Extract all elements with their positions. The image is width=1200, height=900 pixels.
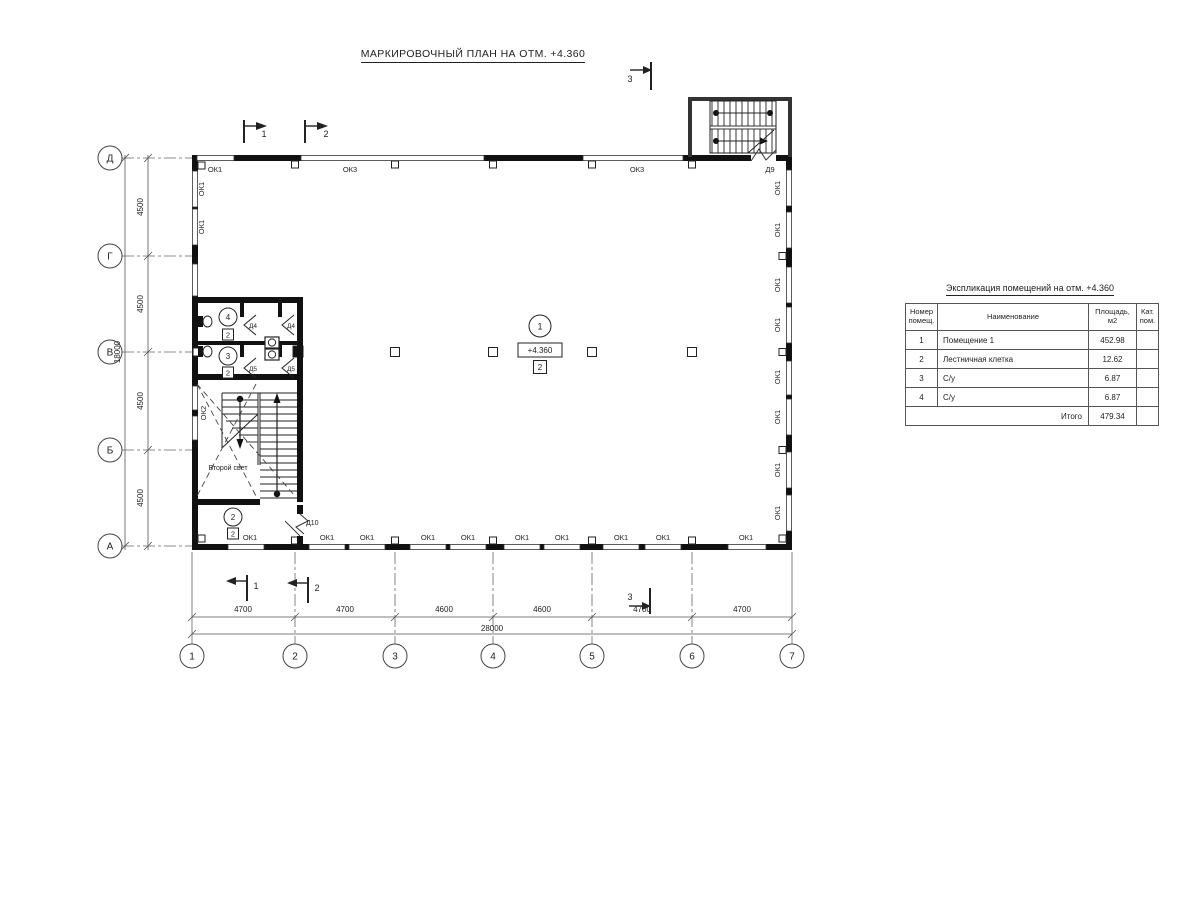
schedule-title-text: Экспликация помещений на отм. +4.360	[946, 283, 1114, 296]
tag-ok1: ОК1	[421, 533, 435, 542]
room-marker-wc-lower: 3 2	[219, 347, 237, 378]
room-marker-wc-upper: 4 2	[219, 308, 237, 340]
cell-area: 452.98	[1089, 331, 1137, 350]
axis-row-4: А	[107, 542, 114, 553]
floor-plan-canvas: 4500 4500 4500 4500 18000 4700 4700 4600…	[0, 0, 1200, 900]
dim-row-2: 4500	[136, 392, 145, 410]
tag-d10: Д10	[306, 520, 319, 527]
section-1-label: 1	[261, 129, 266, 139]
dim-col-total: 28000	[481, 624, 504, 633]
dim-row-1: 4500	[136, 295, 145, 313]
window-segment	[786, 212, 791, 248]
tag-ok1: ОК1	[197, 182, 206, 196]
section-mark-2-top: 2	[305, 120, 329, 143]
axis-col-0: 1	[189, 652, 195, 663]
schedule-total-row: Итого 479.34	[906, 407, 1159, 426]
cell-area: 6.87	[1089, 369, 1137, 388]
tag-ok1: ОК1	[773, 370, 782, 384]
tag-d5: Д5	[287, 366, 295, 373]
window-segment	[786, 495, 791, 531]
tag-ok1: ОК1	[773, 223, 782, 237]
total-value: 479.34	[1089, 407, 1137, 426]
plumbing-fixtures	[198, 316, 279, 360]
category-mark: 2	[538, 363, 543, 372]
room-number: 4	[226, 313, 231, 322]
cell-num: 4	[906, 388, 938, 407]
column	[588, 348, 597, 357]
table-row: 3 С/у 6.87	[906, 369, 1159, 388]
schedule-table: Номер помещ. Наименование Площадь, м2 Ка…	[905, 303, 1159, 426]
schedule-header-row: Номер помещ. Наименование Площадь, м2 Ка…	[906, 304, 1159, 331]
toilet-icon	[198, 346, 203, 357]
section-mark-1-bottom: 1	[226, 575, 259, 601]
cell-area: 6.87	[1089, 388, 1137, 407]
drawing-sheet: МАРКИРОВОЧНЫЙ ПЛАН НА ОТМ. +4.360	[0, 0, 1200, 900]
axis-bubble-labels: Д Г В Б А 1 2 3 4 5 6 7	[107, 154, 796, 663]
cell-name: С/у	[938, 388, 1089, 407]
tag-ok1: ОК1	[197, 220, 206, 234]
category-mark: 2	[226, 331, 230, 340]
window-segment	[645, 544, 681, 549]
tag-ok1: ОК1	[320, 533, 334, 542]
room-schedule: Экспликация помещений на отм. +4.360 Ном…	[880, 283, 1180, 426]
axis-row-0: Д	[107, 154, 114, 165]
tag-ok1: ОК1	[243, 533, 257, 542]
tag-ok1: ОК1	[614, 533, 628, 542]
category-mark: 2	[231, 530, 235, 539]
column	[489, 348, 498, 357]
tag-d9: Д9	[765, 165, 774, 174]
cell-cat	[1137, 388, 1159, 407]
axis-col-6: 7	[789, 652, 795, 663]
window-segment	[728, 544, 766, 549]
window-segment	[786, 307, 791, 343]
category-mark: 2	[226, 369, 230, 378]
axis-col-1: 2	[292, 652, 298, 663]
total-cat	[1137, 407, 1159, 426]
tag-ok1: ОК1	[739, 533, 753, 542]
upper-stair-box	[688, 97, 792, 161]
tag-d4: Д4	[249, 323, 257, 330]
tag-ok1: ОК1	[773, 318, 782, 332]
window-segment	[349, 544, 385, 549]
cell-num: 2	[906, 350, 938, 369]
tag-ok3: ОК3	[343, 165, 357, 174]
tag-ok1: ОК1	[773, 181, 782, 195]
window-segment	[192, 416, 197, 440]
stairwell	[192, 380, 308, 544]
window-segment	[192, 386, 197, 410]
dim-col-1: 4700	[336, 605, 354, 614]
col-header-cat: Кат. пом.	[1137, 304, 1159, 331]
dim-col-3: 4600	[533, 605, 551, 614]
axis-col-3: 4	[490, 652, 496, 663]
toilet-icon	[198, 316, 203, 327]
tag-ok3: ОК3	[630, 165, 644, 174]
section-mark-3-top: 3	[627, 62, 652, 90]
section-3-bottom-label: 3	[627, 592, 632, 602]
window-segment	[410, 544, 446, 549]
axis-row-1: Г	[107, 252, 113, 263]
window-segment	[583, 155, 683, 160]
col-header-num: Номер помещ.	[906, 304, 938, 331]
window-segment	[786, 170, 791, 206]
elevation-mark: +4.360	[528, 346, 553, 355]
column	[391, 348, 400, 357]
room-marker-stair: 2 2	[224, 508, 242, 539]
dim-row-3: 4500	[136, 489, 145, 507]
tag-ok1: ОК1	[461, 533, 475, 542]
tag-ok1: ОК1	[773, 410, 782, 424]
axis-col-4: 5	[589, 652, 595, 663]
room-number: 1	[537, 322, 542, 332]
tag-ok1: ОК1	[555, 533, 569, 542]
cell-num: 1	[906, 331, 938, 350]
dim-row-total: 18000	[113, 340, 122, 363]
axis-col-2: 3	[392, 652, 398, 663]
column	[688, 348, 697, 357]
section-mark-2-bottom: 2	[287, 577, 320, 603]
room-marker-hall: 1 +4.360 2	[518, 315, 562, 374]
cell-cat	[1137, 350, 1159, 369]
col-header-name: Наименование	[938, 304, 1089, 331]
cell-name: С/у	[938, 369, 1089, 388]
dim-row-0: 4500	[136, 198, 145, 216]
window-segment	[228, 544, 264, 549]
cell-name: Помещение 1	[938, 331, 1089, 350]
tag-d5: Д5	[249, 366, 257, 373]
room-number: 3	[226, 352, 231, 361]
window-segment	[192, 264, 197, 296]
col-header-area: Площадь, м2	[1089, 304, 1137, 331]
window-segment	[504, 544, 540, 549]
section-mark-1-top: 1	[244, 120, 267, 143]
window-segment	[544, 544, 580, 549]
section-2-label: 2	[323, 129, 328, 139]
section-2-bottom-label: 2	[314, 583, 319, 593]
cell-num: 3	[906, 369, 938, 388]
tag-ok2: ОК2	[199, 406, 208, 420]
cell-cat	[1137, 369, 1159, 388]
cell-cat	[1137, 331, 1159, 350]
tag-ok1: ОК1	[773, 463, 782, 477]
schedule-title: Экспликация помещений на отм. +4.360	[880, 283, 1180, 293]
window-segment	[309, 544, 345, 549]
window-segment	[786, 399, 791, 435]
window-segment	[603, 544, 639, 549]
second-light-label: Второй свет	[208, 464, 248, 472]
tag-ok1: ОК1	[773, 278, 782, 292]
window-segment	[197, 155, 234, 160]
tag-d4: Д4	[287, 323, 295, 330]
dim-col-5: 4700	[733, 605, 751, 614]
tag-ok1: ОК1	[773, 506, 782, 520]
window-segment	[786, 452, 791, 488]
axis-col-5: 6	[689, 652, 695, 663]
cell-name: Лестничная клетка	[938, 350, 1089, 369]
tag-ok1: ОК1	[656, 533, 670, 542]
tag-ok1: ОК1	[208, 165, 222, 174]
section-marks: 1 2 3 1	[226, 62, 652, 614]
window-segment	[786, 361, 791, 395]
table-row: 2 Лестничная клетка 12.62	[906, 350, 1159, 369]
axis-row-2: В	[107, 348, 114, 359]
section-1-bottom-label: 1	[253, 581, 258, 591]
cell-area: 12.62	[1089, 350, 1137, 369]
tag-ok1: ОК1	[360, 533, 374, 542]
axis-row-3: Б	[107, 446, 114, 457]
window-segment	[450, 544, 486, 549]
dim-col-0: 4700	[234, 605, 252, 614]
table-row: 1 Помещение 1 452.98	[906, 331, 1159, 350]
window-segment	[786, 267, 791, 303]
dim-col-2: 4600	[435, 605, 453, 614]
table-row: 4 С/у 6.87	[906, 388, 1159, 407]
total-label: Итого	[906, 407, 1089, 426]
tag-ok1: ОК1	[515, 533, 529, 542]
section-3-top-label: 3	[627, 74, 632, 84]
room-number: 2	[231, 513, 236, 522]
window-segment	[301, 155, 484, 160]
